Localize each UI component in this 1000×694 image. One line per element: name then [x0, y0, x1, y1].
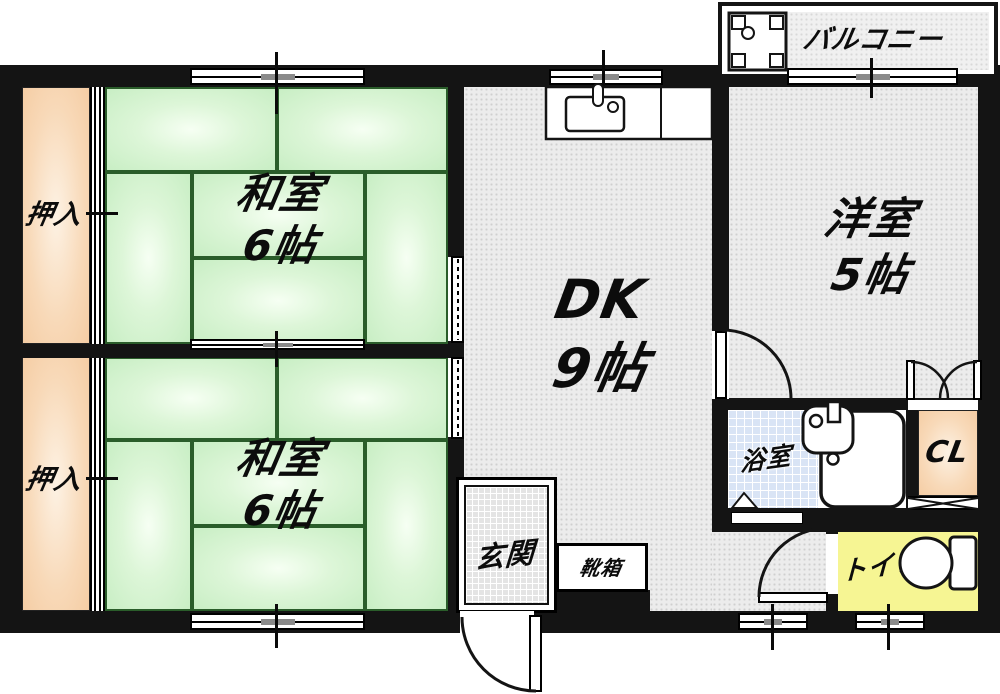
wall-washitsu-dk-mid [448, 341, 464, 358]
shoebox-label: 靴箱 [578, 558, 624, 578]
window-kitchen [549, 69, 663, 85]
sliding-door-washitsu-bottom-dk [451, 357, 464, 439]
window-tick [771, 604, 774, 650]
bathroom-label: 浴室 [740, 443, 792, 476]
wall-under-shoebox [548, 590, 650, 611]
toilet-door-opening [826, 534, 838, 594]
washitsu-bottom-size: 6帖 [240, 490, 321, 532]
tatami-mat [105, 172, 192, 344]
youshitsu-size: 5帖 [828, 254, 912, 298]
window-toilet-bottom [855, 613, 925, 630]
dk-size: 9帖 [548, 342, 651, 396]
window-tick [602, 50, 605, 108]
oshiire-bottom-fusuma-doors [90, 357, 105, 611]
tatami-mat [277, 357, 448, 440]
closet-door-leaf-left [906, 360, 915, 400]
tatami-mat [277, 87, 448, 172]
tatami-mat [365, 172, 448, 344]
washitsu-top-size: 6帖 [240, 225, 321, 267]
closet-label: CL [923, 438, 971, 468]
oshiire-top-fusuma-doors [90, 87, 105, 344]
front-door-leaf [529, 615, 542, 692]
closet-door-leaf-right [973, 360, 982, 400]
dk-name: DK [551, 273, 649, 327]
window-tick [887, 604, 890, 650]
window-tick [275, 331, 278, 367]
wall-dk-youshitsu [712, 87, 729, 331]
outer-wall-right [978, 65, 1000, 633]
tatami-mat [105, 357, 277, 440]
bathroom-entry-threshold [731, 512, 803, 524]
window-tick [275, 604, 278, 648]
washitsu-bottom-name: 和室 [233, 438, 326, 480]
oshiire-top-tick [86, 212, 118, 215]
wall-washitsu-dk-upper [448, 87, 464, 257]
toilet-door-leaf [758, 592, 828, 603]
bathtub-area [818, 410, 906, 508]
closet-door-opening [908, 400, 978, 410]
oshiire-bottom-label: 押入 [24, 467, 85, 494]
youshitsu-door-leaf [715, 331, 727, 399]
tatami-mat [105, 87, 277, 172]
sliding-door-washitsu-top-dk [451, 256, 464, 343]
oshiire-top-label: 押入 [24, 202, 85, 229]
floor-plan: 和室 6帖 和室 6帖 DK 9帖 洋室 5帖 バルコニー 押入 押入 浴室 C… [0, 0, 1000, 694]
youshitsu-name: 洋室 [821, 198, 919, 242]
front-door-opening [460, 611, 534, 633]
tatami-mat [192, 526, 365, 611]
balcony-label: バルコニー [801, 27, 945, 54]
closet-hatch [908, 496, 978, 510]
window-tick [870, 58, 873, 98]
wall-tub-closet [906, 410, 918, 508]
tatami-mat [105, 440, 192, 611]
window-tick [275, 52, 278, 114]
oshiire-bottom-tick [86, 477, 118, 480]
tatami-mat [192, 258, 365, 344]
genkan-label: 玄関 [474, 538, 536, 574]
washitsu-top-name: 和室 [233, 173, 326, 215]
tatami-mat [365, 440, 448, 611]
